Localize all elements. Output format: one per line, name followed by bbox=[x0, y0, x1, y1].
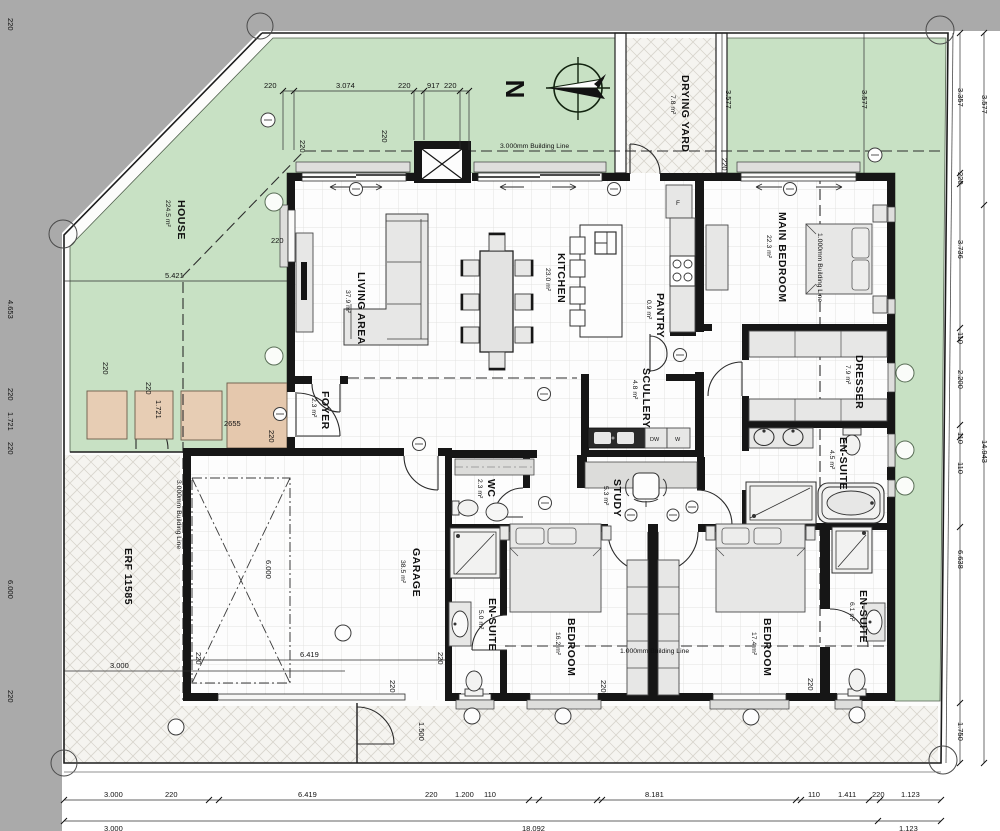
svg-text:14.943: 14.943 bbox=[980, 440, 989, 463]
svg-text:MAIN BEDROOM: MAIN BEDROOM bbox=[776, 212, 788, 303]
svg-text:3.000mm Building Line: 3.000mm Building Line bbox=[175, 480, 182, 549]
svg-text:2.3 m²: 2.3 m² bbox=[476, 479, 483, 499]
svg-text:F: F bbox=[676, 200, 680, 207]
svg-text:KITCHEN: KITCHEN bbox=[555, 253, 567, 303]
svg-text:BEDROOM: BEDROOM bbox=[565, 618, 577, 676]
svg-text:WC: WC bbox=[485, 479, 497, 498]
svg-text:3.577: 3.577 bbox=[724, 90, 733, 109]
svg-text:220: 220 bbox=[398, 81, 411, 90]
svg-text:6.000: 6.000 bbox=[264, 560, 273, 579]
svg-text:22.3 m²: 22.3 m² bbox=[765, 235, 772, 259]
svg-text:W: W bbox=[675, 437, 681, 443]
svg-text:4.5 m²: 4.5 m² bbox=[828, 450, 835, 470]
svg-text:220: 220 bbox=[806, 678, 815, 691]
svg-text:37.9 m²: 37.9 m² bbox=[344, 290, 351, 314]
svg-text:220: 220 bbox=[380, 130, 389, 143]
svg-text:110: 110 bbox=[956, 432, 965, 444]
svg-text:1.000mm Building Line: 1.000mm Building Line bbox=[620, 648, 689, 655]
svg-text:110: 110 bbox=[484, 790, 496, 799]
svg-text:220: 220 bbox=[271, 236, 284, 245]
svg-text:1.411: 1.411 bbox=[838, 790, 856, 799]
svg-text:220: 220 bbox=[388, 680, 397, 693]
svg-text:8.181: 8.181 bbox=[645, 790, 664, 799]
svg-text:1.200: 1.200 bbox=[455, 790, 474, 799]
svg-text:18.092: 18.092 bbox=[522, 824, 545, 831]
svg-text:0.9 m²: 0.9 m² bbox=[645, 300, 652, 320]
svg-text:220: 220 bbox=[165, 790, 178, 799]
svg-text:DW: DW bbox=[650, 437, 660, 443]
svg-text:4.8 m²: 4.8 m² bbox=[631, 380, 638, 400]
svg-text:EN-SUITE: EN-SUITE bbox=[486, 598, 498, 651]
svg-text:220: 220 bbox=[267, 430, 276, 443]
svg-text:6.419: 6.419 bbox=[300, 650, 319, 659]
svg-text:220: 220 bbox=[6, 690, 15, 703]
svg-text:1.721: 1.721 bbox=[154, 400, 163, 419]
svg-text:220: 220 bbox=[6, 442, 15, 455]
svg-text:SCULLERY: SCULLERY bbox=[640, 368, 652, 428]
svg-text:110: 110 bbox=[808, 790, 820, 799]
svg-text:5.0 m²: 5.0 m² bbox=[477, 610, 484, 630]
svg-text:1.000mm Building Line: 1.000mm Building Line bbox=[816, 233, 823, 302]
svg-text:220: 220 bbox=[264, 81, 277, 90]
svg-text:7.8 m²: 7.8 m² bbox=[669, 95, 676, 115]
svg-text:110: 110 bbox=[956, 332, 965, 344]
svg-text:220: 220 bbox=[6, 388, 15, 401]
svg-text:ERF 11585: ERF 11585 bbox=[122, 548, 134, 605]
svg-text:3.357: 3.357 bbox=[956, 88, 965, 107]
svg-text:917: 917 bbox=[427, 81, 440, 90]
svg-text:220: 220 bbox=[872, 790, 885, 799]
svg-text:6.1 m²: 6.1 m² bbox=[848, 602, 855, 622]
svg-text:220: 220 bbox=[6, 18, 15, 31]
svg-text:3.000mm Building Line: 3.000mm Building Line bbox=[500, 143, 569, 150]
svg-text:38.5 m²: 38.5 m² bbox=[399, 560, 406, 584]
svg-text:220: 220 bbox=[101, 362, 110, 375]
svg-text:LIVING AREA: LIVING AREA bbox=[355, 272, 367, 345]
svg-text:N: N bbox=[500, 80, 530, 99]
svg-text:5.421: 5.421 bbox=[165, 271, 184, 280]
svg-text:16.2 m²: 16.2 m² bbox=[554, 632, 561, 656]
svg-text:EN-SUITE: EN-SUITE bbox=[857, 590, 869, 643]
svg-text:220: 220 bbox=[298, 140, 307, 153]
svg-text:3.000: 3.000 bbox=[110, 661, 129, 670]
svg-text:220: 220 bbox=[144, 382, 153, 395]
svg-text:DRYING YARD: DRYING YARD bbox=[679, 75, 691, 152]
svg-text:FOYER: FOYER bbox=[319, 391, 331, 430]
svg-text:BEDROOM: BEDROOM bbox=[761, 618, 773, 676]
svg-text:220: 220 bbox=[599, 680, 608, 693]
svg-text:1.123: 1.123 bbox=[901, 790, 920, 799]
svg-text:EN-SUITE: EN-SUITE bbox=[837, 437, 849, 490]
svg-text:110: 110 bbox=[956, 462, 965, 474]
svg-text:7.9 m²: 7.9 m² bbox=[844, 365, 851, 385]
svg-text:23.0 m²: 23.0 m² bbox=[544, 268, 551, 292]
svg-text:6.419: 6.419 bbox=[298, 790, 317, 799]
svg-text:STUDY: STUDY bbox=[611, 479, 623, 517]
svg-text:6.638: 6.638 bbox=[956, 550, 965, 569]
svg-text:1.750: 1.750 bbox=[956, 722, 965, 741]
svg-text:3.000: 3.000 bbox=[104, 790, 123, 799]
svg-text:2.3 m²: 2.3 m² bbox=[310, 398, 317, 418]
svg-text:PANTRY: PANTRY bbox=[654, 293, 666, 338]
svg-text:5.3 m²: 5.3 m² bbox=[602, 486, 609, 506]
svg-text:3.577: 3.577 bbox=[980, 95, 989, 114]
svg-text:3.074: 3.074 bbox=[336, 81, 355, 90]
svg-text:220: 220 bbox=[425, 790, 438, 799]
svg-text:6.000: 6.000 bbox=[6, 580, 15, 599]
svg-text:3.736: 3.736 bbox=[956, 240, 965, 259]
svg-text:HOUSE: HOUSE bbox=[175, 200, 187, 240]
svg-text:GARAGE: GARAGE bbox=[410, 548, 422, 597]
svg-text:220: 220 bbox=[720, 158, 729, 171]
svg-text:1.721: 1.721 bbox=[6, 412, 15, 431]
svg-text:1.500: 1.500 bbox=[417, 722, 426, 741]
svg-text:220: 220 bbox=[436, 652, 445, 665]
svg-text:4.653: 4.653 bbox=[6, 300, 15, 319]
svg-text:220: 220 bbox=[444, 81, 457, 90]
svg-text:3.000: 3.000 bbox=[104, 824, 123, 831]
svg-text:2.200: 2.200 bbox=[956, 370, 965, 389]
svg-text:1.123: 1.123 bbox=[899, 824, 918, 831]
svg-text:220: 220 bbox=[956, 172, 965, 185]
svg-text:17.4 m²: 17.4 m² bbox=[750, 632, 757, 656]
svg-text:224.5 m²: 224.5 m² bbox=[164, 200, 171, 228]
svg-text:DRESSER: DRESSER bbox=[853, 355, 865, 409]
svg-text:3.577: 3.577 bbox=[860, 90, 869, 109]
svg-text:220: 220 bbox=[194, 652, 203, 665]
svg-text:2655: 2655 bbox=[224, 419, 241, 428]
